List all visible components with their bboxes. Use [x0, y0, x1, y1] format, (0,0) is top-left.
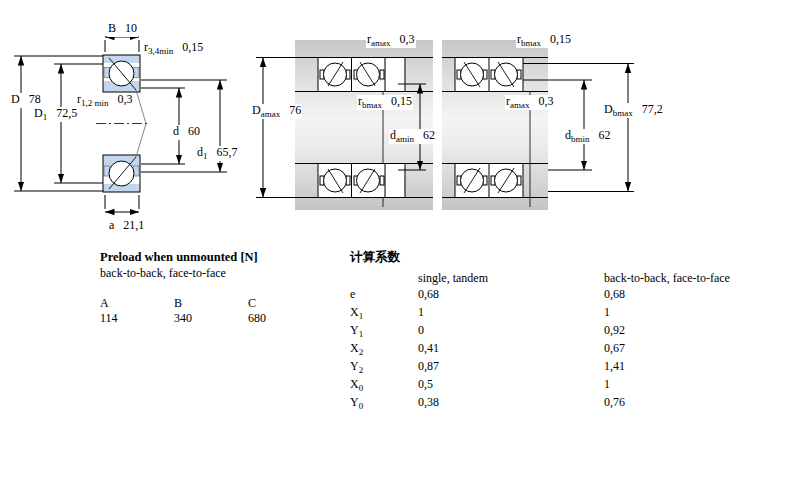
preload-col-C: C — [248, 296, 322, 310]
dim-label-a: a21,1 — [108, 219, 145, 234]
factor-label: Y0 — [350, 395, 418, 413]
preload-table: Preload when unmounted [N] back-to-back,… — [100, 250, 322, 325]
preload-values: 114340680 — [100, 311, 322, 325]
factors-blank-cell — [350, 271, 418, 287]
factors-column-headers: single, tandemback-to-back, face-to-face — [350, 271, 730, 287]
dim-symbol: D — [11, 92, 20, 106]
dim-value: 0,3 — [400, 32, 415, 46]
preload-value-C: 680 — [248, 311, 322, 325]
dim-subscript: 3,4min — [148, 46, 173, 56]
dim-label-ramax-a: ramax0,3 — [366, 33, 416, 48]
factors-col2-header: back-to-back, face-to-face — [604, 271, 730, 287]
preload-title: Preload when unmounted [N] — [100, 250, 322, 264]
factor-value-paired: 1,41 — [604, 359, 730, 377]
dim-value: 0,3 — [118, 92, 133, 106]
preload-col-A: A — [100, 296, 174, 310]
dim-value: 0,15 — [550, 32, 571, 46]
dim-label-d: d60 — [172, 125, 201, 140]
dim-label-D1: D172,5 — [33, 107, 78, 122]
dim-subscript: 1 — [43, 112, 48, 122]
factor-label: Y1 — [350, 323, 418, 341]
factor-value-paired: 0,67 — [604, 341, 730, 359]
dim-symbol: d — [173, 124, 179, 138]
preload-value-B: 340 — [174, 311, 248, 325]
dim-value: 65,7 — [217, 145, 238, 159]
dim-symbol: a — [109, 218, 114, 232]
dim-subscript: amax — [261, 109, 281, 119]
factor-row: X20,410,67 — [350, 341, 730, 359]
mounted-pair-drawing-a — [256, 40, 433, 210]
dim-label-r12min: r1,2 min0,3 — [76, 93, 134, 108]
dim-symbol: B — [108, 21, 116, 35]
dim-subscript: bmax — [613, 108, 633, 118]
mounted-pair-drawing-b — [442, 40, 634, 210]
factor-value-paired: 0,92 — [604, 323, 730, 341]
preload-value-A: 114 — [100, 311, 174, 325]
dim-symbol: D — [604, 102, 613, 116]
dim-subscript: amin — [396, 134, 414, 144]
factor-value-single: 1 — [418, 305, 604, 323]
dim-subscript: amax — [510, 100, 530, 110]
dim-subscript: bmax — [362, 100, 382, 110]
dim-label-rbmax-a: rbmax0,15 — [357, 95, 413, 110]
factor-value-single: 0,87 — [418, 359, 604, 377]
preload-column-headers: ABC — [100, 296, 322, 310]
dim-value: 76 — [289, 103, 301, 117]
preload-col-B: B — [174, 296, 248, 310]
factor-value-single: 0,5 — [418, 377, 604, 395]
factor-value-paired: 0,76 — [604, 395, 730, 413]
factor-row: Y100,92 — [350, 323, 730, 341]
factor-value-single: 0,38 — [418, 395, 604, 413]
dim-label-dbmin: dbmin62 — [564, 129, 612, 144]
factor-row: e0,680,68 — [350, 287, 730, 305]
dim-value: 21,1 — [123, 218, 144, 232]
factors-col1-header: single, tandem — [418, 271, 604, 287]
dim-label-damin: damin62 — [389, 129, 436, 144]
factor-label: e — [350, 287, 418, 305]
factor-label: Y2 — [350, 359, 418, 377]
dim-label-d1: d165,7 — [196, 146, 239, 161]
factors-title: 计算系数 — [350, 250, 730, 264]
factor-row: X00,51 — [350, 377, 730, 395]
dim-subscript: amax — [371, 38, 391, 48]
factor-value-paired: 0,68 — [604, 287, 730, 305]
dim-value: 62 — [423, 128, 435, 142]
dim-value: 0,15 — [182, 40, 203, 54]
dim-label-ramax-b: ramax0,3 — [505, 95, 555, 110]
factor-row: Y00,380,76 — [350, 395, 730, 413]
dim-label-r34min: r3,4min0,15 — [143, 41, 204, 56]
dim-value: 0,3 — [539, 94, 554, 108]
factor-value-single: 0,68 — [418, 287, 604, 305]
dim-subscript: 1,2 min — [81, 98, 109, 108]
factor-row: X111 — [350, 305, 730, 323]
dim-value: 62 — [599, 128, 611, 142]
factor-label: X2 — [350, 341, 418, 359]
dim-value: 72,5 — [56, 106, 77, 120]
dim-symbol: D — [252, 103, 261, 117]
dim-label-Damax: Damax76 — [251, 104, 302, 119]
dim-symbol: D — [34, 106, 43, 120]
factor-row: Y20,871,41 — [350, 359, 730, 377]
factor-label: X0 — [350, 377, 418, 395]
factor-value-paired: 1 — [604, 377, 730, 395]
dim-subscript: bmax — [521, 38, 541, 48]
bearing-catalog-page: B10 r3,4min0,15 r1,2 min0,3 D78 D172,5 d… — [0, 0, 800, 500]
dim-label-rbmax-b: rbmax0,15 — [516, 33, 572, 48]
factor-value-single: 0 — [418, 323, 604, 341]
factor-label: X1 — [350, 305, 418, 323]
factor-value-single: 0,41 — [418, 341, 604, 359]
dim-subscript: 1 — [203, 151, 208, 161]
dim-value: 77,2 — [642, 102, 663, 116]
preload-subtitle: back-to-back, face-to-face — [100, 266, 322, 280]
dim-label-B: B10 — [107, 22, 138, 37]
dim-value: 78 — [29, 92, 41, 106]
dim-label-Dbmax: Dbmax77,2 — [603, 103, 664, 118]
factor-value-paired: 1 — [604, 305, 730, 323]
dim-value: 60 — [188, 124, 200, 138]
dim-subscript: bmin — [571, 134, 590, 144]
calculation-factors-table: 计算系数 single, tandemback-to-back, face-to… — [350, 250, 730, 413]
dim-value: 0,15 — [391, 94, 412, 108]
dim-value: 10 — [125, 21, 137, 35]
